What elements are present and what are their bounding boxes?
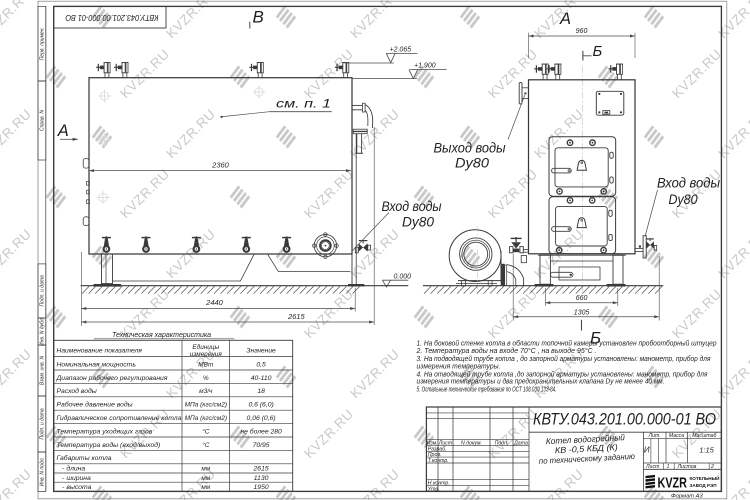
svg-text:1130: 1130 — [254, 475, 269, 482]
svg-text:Масштаб: Масштаб — [692, 433, 717, 439]
svg-text:Значение: Значение — [246, 347, 276, 354]
svg-text:ЗАВОД РЭП: ЗАВОД РЭП — [690, 483, 717, 488]
svg-text:2615: 2615 — [287, 312, 306, 321]
svg-text:Масса: Масса — [669, 433, 684, 439]
svg-text:м3/ч: м3/ч — [199, 388, 213, 395]
svg-text:N докум.: N докум. — [461, 440, 482, 446]
svg-text:+2.065: +2.065 — [390, 47, 412, 54]
svg-text:МВт: МВт — [198, 361, 214, 368]
svg-text:Подп. и дата: Подп. и дата — [39, 275, 45, 307]
svg-text:мм: мм — [201, 484, 210, 491]
svg-text:3. На подводящей трубе котла: 3. На подводящей трубе котла , до запорн… — [417, 355, 711, 363]
svg-text:2. Температура воды на входе: 2. Температура воды на входе 70°С , на в… — [416, 347, 597, 355]
svg-text:КВТУ.043.201.00.000-01 ВО: КВТУ.043.201.00.000-01 ВО — [65, 13, 158, 23]
svg-text:Инв. N подл.: Инв. N подл. — [39, 457, 45, 486]
svg-text:Dy80: Dy80 — [402, 215, 434, 230]
svg-text:Температура уходящих газов: Температура уходящих газов — [57, 427, 153, 435]
svg-text:960: 960 — [576, 28, 588, 35]
svg-text:%: % — [203, 375, 209, 382]
svg-text:4. На отводящей трубе котла ,: 4. На отводящей трубе котла ,до запорной… — [417, 370, 708, 378]
svg-text:не более 280: не более 280 — [240, 427, 282, 435]
svg-text:Подп. и дата: Подп. и дата — [39, 408, 45, 440]
svg-text:Перв. примен.: Перв. примен. — [39, 27, 45, 60]
svg-text:Инв. N дубл.: Инв. N дубл. — [39, 317, 45, 346]
svg-text:измерения температуры.: измерения температуры. — [417, 363, 501, 370]
svg-text:Гидравлическое сопротивление к: Гидравлическое сопротивление котла — [57, 414, 182, 422]
svg-text:18: 18 — [257, 388, 265, 395]
svg-text:И: И — [644, 445, 650, 454]
svg-text:2360: 2360 — [211, 160, 230, 169]
svg-text:70/95: 70/95 — [253, 442, 270, 449]
svg-text:- высота: - высота — [57, 484, 92, 491]
svg-text:Подп.: Подп. — [495, 440, 509, 446]
svg-text:КВТУ.043.201.00.000-01 ВО: КВТУ.043.201.00.000-01 ВО — [533, 411, 716, 429]
svg-text:Наименование показателя: Наименование показателя — [57, 347, 143, 354]
svg-text:Формат А3: Формат А3 — [671, 493, 703, 499]
svg-text:1. На боковой стенке котла в: 1. На боковой стенке котла в области топ… — [417, 339, 717, 347]
svg-text:Вход воды: Вход воды — [657, 175, 721, 191]
svg-text:Выход воды: Выход воды — [434, 140, 507, 156]
svg-text:А: А — [559, 10, 571, 28]
svg-text:Температура воды (вход/выход): Температура воды (вход/выход) — [57, 441, 161, 449]
svg-text:Взам. инв. N: Взам. инв. N — [39, 356, 45, 386]
svg-text:Лист: Лист — [645, 464, 660, 470]
svg-text:1: 1 — [667, 464, 670, 470]
svg-text:2440: 2440 — [205, 298, 224, 307]
svg-text:Справ. N: Справ. N — [39, 110, 45, 131]
svg-text:Вход воды: Вход воды — [382, 198, 443, 214]
svg-text:МПа (кгс/см2): МПа (кгс/см2) — [185, 402, 227, 409]
svg-text:Диапазон рабочего регулировани: Диапазон рабочего регулирования — [56, 374, 168, 382]
svg-text:2: 2 — [710, 464, 714, 470]
svg-text:1305: 1305 — [574, 309, 590, 316]
svg-text:2615: 2615 — [253, 466, 269, 473]
svg-text:0,6 (6,0): 0,6 (6,0) — [248, 402, 273, 409]
svg-text:КОТЕЛЬНЫЙ: КОТЕЛЬНЫЙ — [690, 474, 720, 481]
svg-text:Техническая характеристика: Техническая характеристика — [112, 332, 211, 339]
svg-text:+1.900: +1.900 — [414, 62, 436, 69]
svg-text:660: 660 — [576, 295, 588, 302]
svg-text:Т.контр.: Т.контр. — [428, 458, 449, 464]
svg-text:Лит.: Лит. — [648, 433, 661, 439]
svg-text:мм: мм — [201, 475, 210, 482]
svg-text:измерения температуры и два пр: измерения температуры и два предохраните… — [417, 378, 665, 386]
svg-text:Расход воды: Расход воды — [57, 387, 97, 395]
svg-text:В: В — [253, 8, 264, 27]
svg-text:А: А — [57, 122, 69, 140]
svg-text:40-110: 40-110 — [251, 375, 272, 382]
svg-text:измерения: измерения — [190, 351, 223, 358]
svg-text:KVZR: KVZR — [658, 476, 688, 492]
svg-text:0.000: 0.000 — [394, 273, 412, 280]
svg-text:Габариты котла: Габариты котла — [57, 454, 112, 462]
svg-text:Листов: Листов — [677, 464, 697, 470]
svg-text:Б: Б — [593, 43, 603, 60]
svg-text:Рабочее давление воды: Рабочее давление воды — [57, 401, 133, 409]
svg-text:°С: °С — [202, 441, 210, 449]
svg-text:Утв.: Утв. — [428, 486, 440, 492]
svg-text:0,5: 0,5 — [256, 361, 266, 368]
svg-text:°С: °С — [202, 427, 210, 435]
svg-text:- ширина: - ширина — [57, 475, 92, 482]
svg-text:см. п. 1: см. п. 1 — [276, 99, 331, 111]
svg-text:1:15: 1:15 — [699, 446, 714, 455]
svg-text:МПа (кгс/см2): МПа (кгс/см2) — [185, 415, 227, 422]
svg-text:Дата: Дата — [513, 440, 528, 446]
svg-text:Dy80: Dy80 — [669, 192, 698, 207]
svg-text:- длина: - длина — [57, 465, 86, 473]
svg-text:5. Остальные технические треб: 5. Остальные технические требования по О… — [417, 386, 557, 394]
svg-text:мм: мм — [201, 466, 210, 473]
svg-text:Dy80: Dy80 — [455, 156, 490, 171]
svg-text:0,06 (0,6): 0,06 (0,6) — [247, 415, 276, 422]
svg-text:Номинальная мощность: Номинальная мощность — [57, 361, 137, 368]
svg-text:1950: 1950 — [254, 484, 269, 491]
